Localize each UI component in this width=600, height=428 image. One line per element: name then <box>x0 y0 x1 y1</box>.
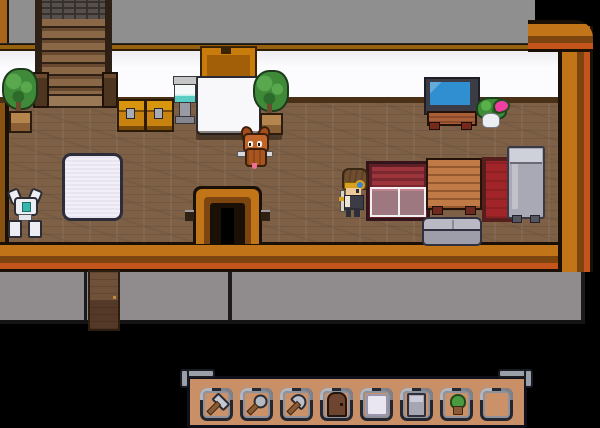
tv-screen <box>430 82 470 105</box>
sofa[interactable] <box>422 217 478 244</box>
skeleton-core <box>22 202 31 212</box>
hotbar-slot-7-potted-plant[interactable] <box>440 388 473 421</box>
foundation-seam <box>84 272 87 320</box>
hotbar-slot-5-mat[interactable] <box>360 388 393 421</box>
stair-bottom-step <box>42 94 109 108</box>
magnifier-icon <box>241 389 272 420</box>
hotbar-slot-4-wooden-door[interactable] <box>320 388 353 421</box>
bed-pillow <box>510 149 542 164</box>
bed-icon <box>407 393 426 417</box>
storage-chest-2[interactable] <box>145 99 174 132</box>
fox-tongue <box>252 163 257 169</box>
newel-post-right <box>102 72 118 108</box>
mat-icon <box>366 394 388 416</box>
skeleton-robot-creature[interactable] <box>6 189 42 237</box>
bed-white-sheet <box>370 187 426 217</box>
empty-slot <box>488 396 506 414</box>
sofa-seat <box>422 229 482 246</box>
hotbar-slots <box>200 388 513 421</box>
left-wall-edge-top <box>0 0 9 44</box>
hotbar-slot-1-hammer[interactable] <box>200 388 233 421</box>
storage-chest-1[interactable] <box>117 99 146 132</box>
hotbar-chain-left <box>180 369 189 388</box>
dresser[interactable] <box>426 158 482 210</box>
bottom-wall-border <box>0 242 593 272</box>
water-cooler[interactable] <box>172 76 198 124</box>
staircase-up[interactable] <box>42 19 105 98</box>
potted-plant-center[interactable] <box>253 70 287 132</box>
plant-icon <box>446 394 468 416</box>
hotbar-slot-3-axe[interactable] <box>280 388 313 421</box>
hotbar-slot-8[interactable] <box>480 388 513 421</box>
hotbar-slot-2-magnifying-glass[interactable] <box>240 388 273 421</box>
foundation-seam <box>228 272 232 320</box>
interior-wall-stub <box>193 186 262 244</box>
gray-bed[interactable] <box>507 146 545 219</box>
wall-post-left <box>185 210 194 221</box>
player-character[interactable] <box>340 168 367 218</box>
red-bed-with-sheet[interactable] <box>366 161 430 221</box>
tv-on-stand[interactable] <box>424 77 476 128</box>
fox-creature[interactable] <box>240 126 269 169</box>
axe-icon <box>281 389 312 420</box>
top-right-wall-corner <box>528 20 593 52</box>
hotbar-slot-6-bed[interactable] <box>400 388 433 421</box>
door-icon <box>327 392 347 417</box>
hotbar <box>187 376 527 428</box>
game-viewport: { "meta": { "title": "Top-down pixel-art… <box>0 0 600 414</box>
potted-plant-left[interactable] <box>2 68 36 130</box>
plant-monster-creature[interactable] <box>476 97 508 129</box>
hammer-icon <box>201 389 232 420</box>
right-wall-border <box>558 26 593 272</box>
wall-post-right <box>261 210 270 221</box>
player-legs <box>346 208 360 217</box>
white-mat[interactable] <box>62 153 123 221</box>
hotbar-chain-right <box>524 369 533 388</box>
wooden-exterior-door[interactable] <box>88 270 120 331</box>
plant-pot <box>9 111 32 133</box>
foundation-seam <box>581 272 585 320</box>
